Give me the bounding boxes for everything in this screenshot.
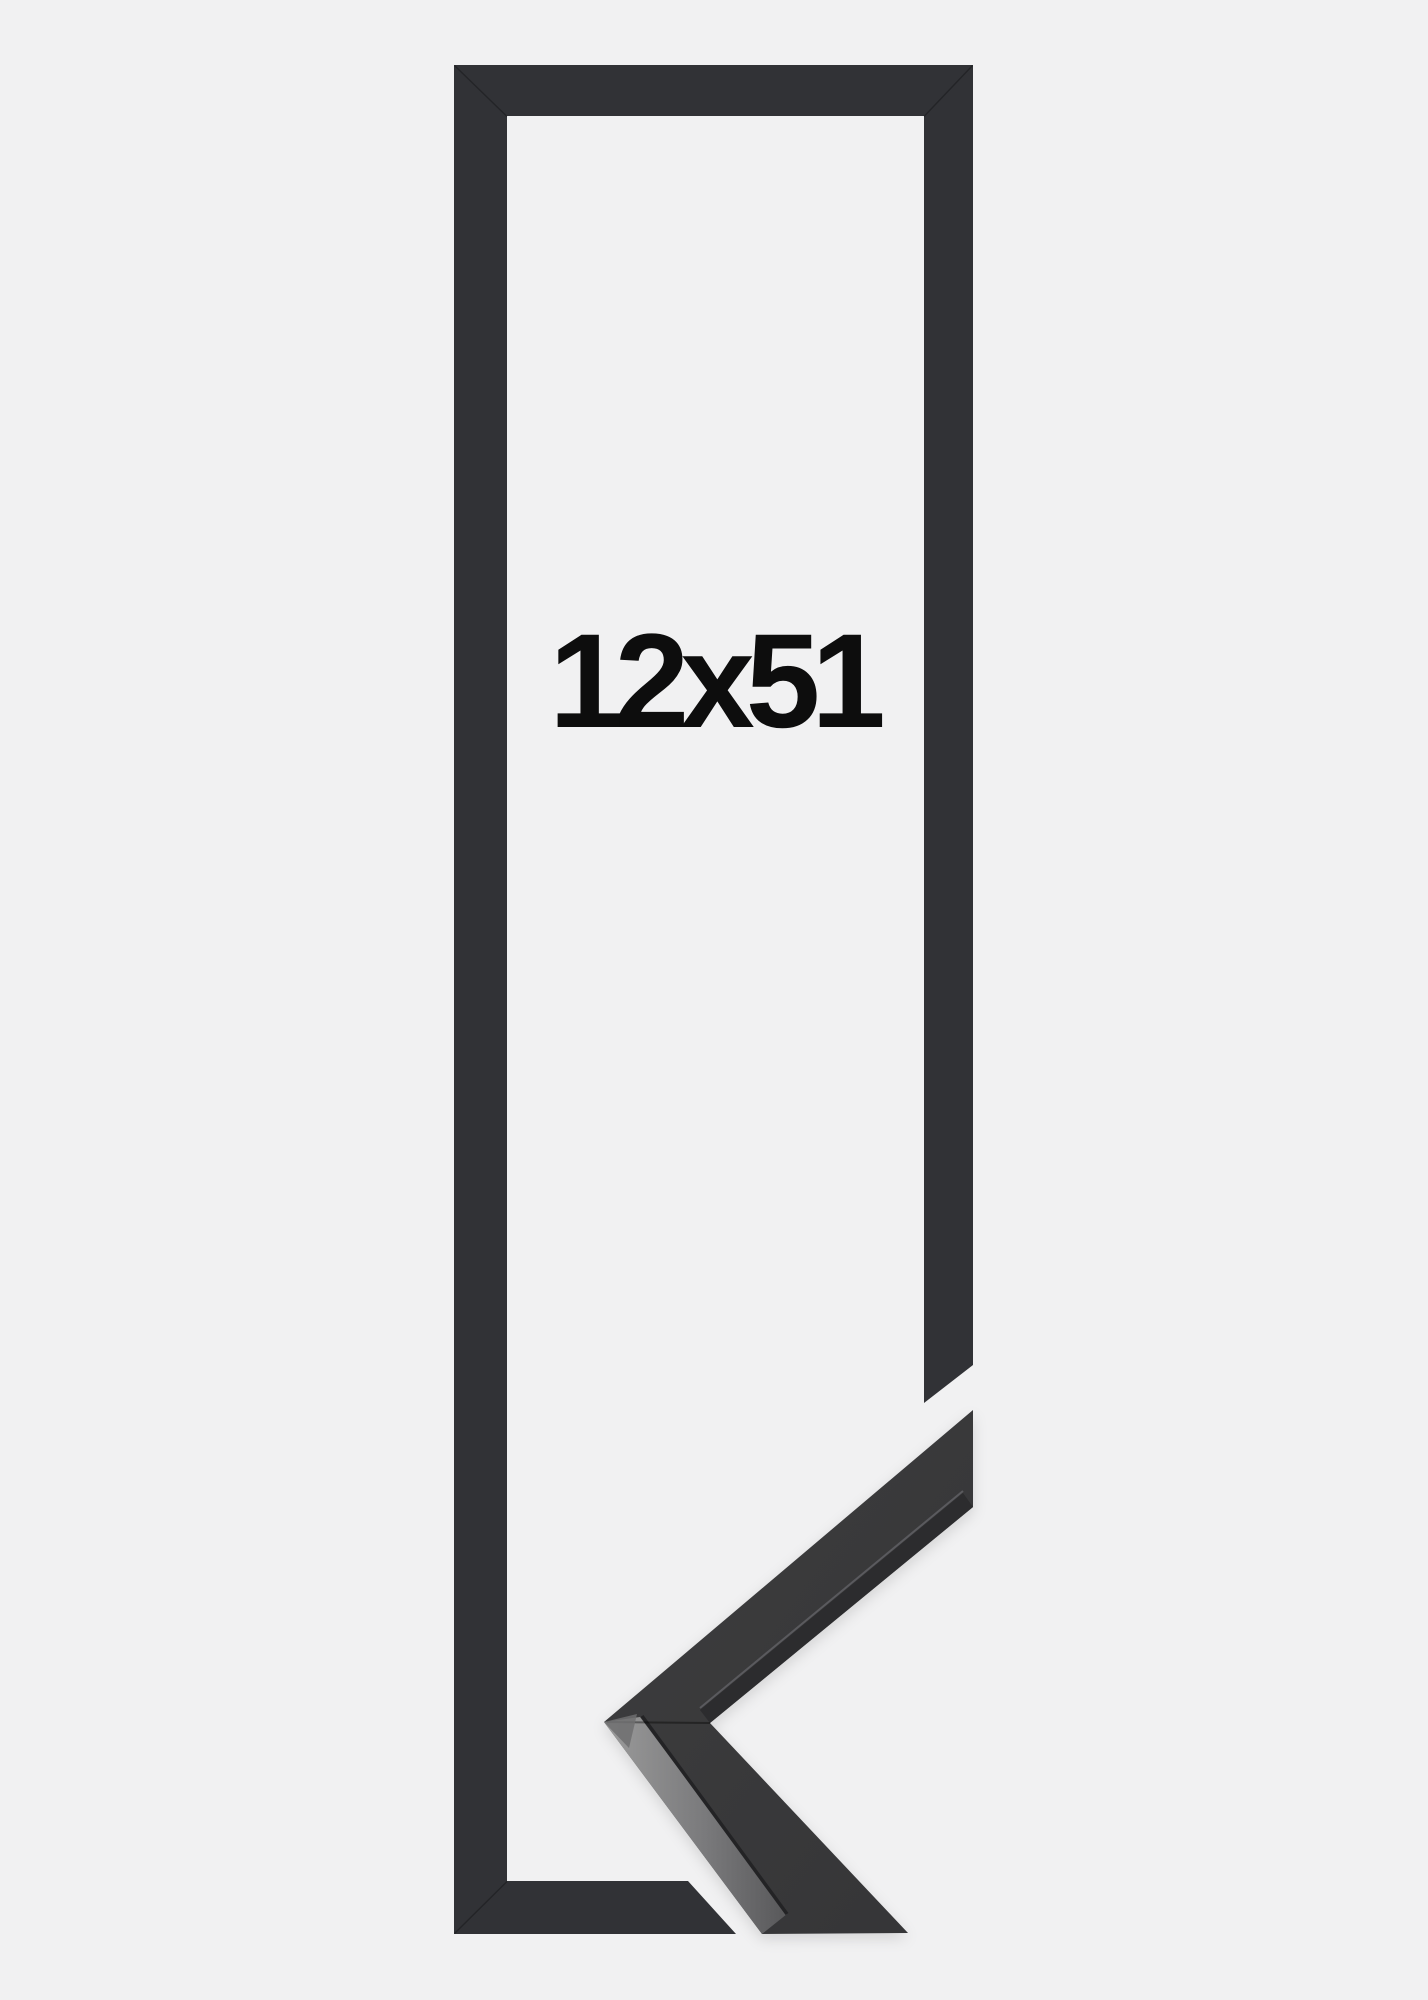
frame-right-bar xyxy=(924,65,973,1403)
frame-corner-profile-photo xyxy=(604,1410,973,1934)
corner-profile-highlight-line xyxy=(700,1491,963,1708)
product-image-frame-12x51: 12x51 xyxy=(0,0,1428,2000)
frame-product-graphic: 12x51 xyxy=(0,0,1428,2000)
frame-size-label: 12x51 xyxy=(549,607,882,756)
frame-bottom-bar xyxy=(454,1881,736,1934)
frame-top-bar xyxy=(454,65,973,116)
corner-profile-top-surface xyxy=(604,1410,973,1934)
frame-left-bar xyxy=(454,65,507,1934)
